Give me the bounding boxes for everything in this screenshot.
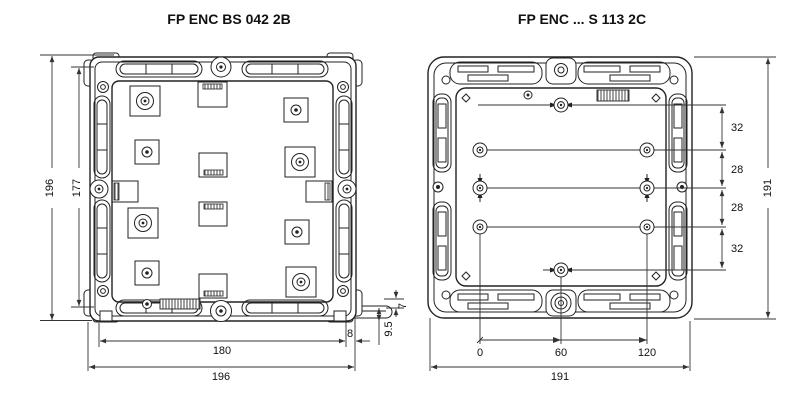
dim-row-spacing-3: 28 — [731, 202, 743, 214]
right-enclosure-drawing — [428, 57, 726, 344]
dim-ordinate-0: 0 — [477, 347, 483, 359]
dim-ordinate-60: 60 — [555, 347, 567, 359]
right-center-boss — [338, 180, 356, 198]
dim-right-overall-width: 191 — [551, 371, 569, 383]
drawing-svg: FP ENC BS 042 2B FP ENC ... S 113 2C — [0, 0, 800, 401]
mounting-hole — [473, 220, 487, 234]
mounting-hole — [640, 220, 654, 234]
bottom-center-boss — [211, 301, 232, 322]
right-drawing-title: FP ENC ... S 113 2C — [518, 11, 646, 27]
dim-row-spacing-4: 32 — [731, 243, 743, 255]
dim-left-foot-offset: 8 — [347, 328, 353, 340]
dim-left-mounting-width: 180 — [213, 345, 231, 357]
dim-ordinate-120: 120 — [638, 347, 656, 359]
dim-left-overall-width: 196 — [212, 371, 230, 383]
dim-left-overall-height: 196 — [44, 179, 56, 197]
dim-row-spacing-2: 28 — [731, 164, 743, 176]
dim-left-rail-height: 177 — [71, 179, 83, 197]
dim-left-flange-thickness: 7 — [397, 303, 409, 309]
bottom-band-slots — [450, 290, 670, 316]
dim-left-foot-depth: 9.5 — [383, 321, 395, 336]
dim-right-overall-height: 191 — [762, 179, 774, 197]
mounting-hole — [473, 143, 487, 157]
left-enclosure-drawing — [84, 53, 392, 322]
mounting-hole — [640, 143, 654, 157]
left-center-boss — [90, 180, 108, 198]
technical-drawing-page: FP ENC BS 042 2B FP ENC ... S 113 2C — [0, 0, 800, 401]
dim-row-spacing-1: 32 — [731, 122, 743, 134]
nameplate-label — [160, 299, 200, 309]
nameplate-label — [597, 90, 629, 101]
top-center-boss — [211, 57, 231, 77]
left-drawing-title: FP ENC BS 042 2B — [167, 11, 290, 27]
